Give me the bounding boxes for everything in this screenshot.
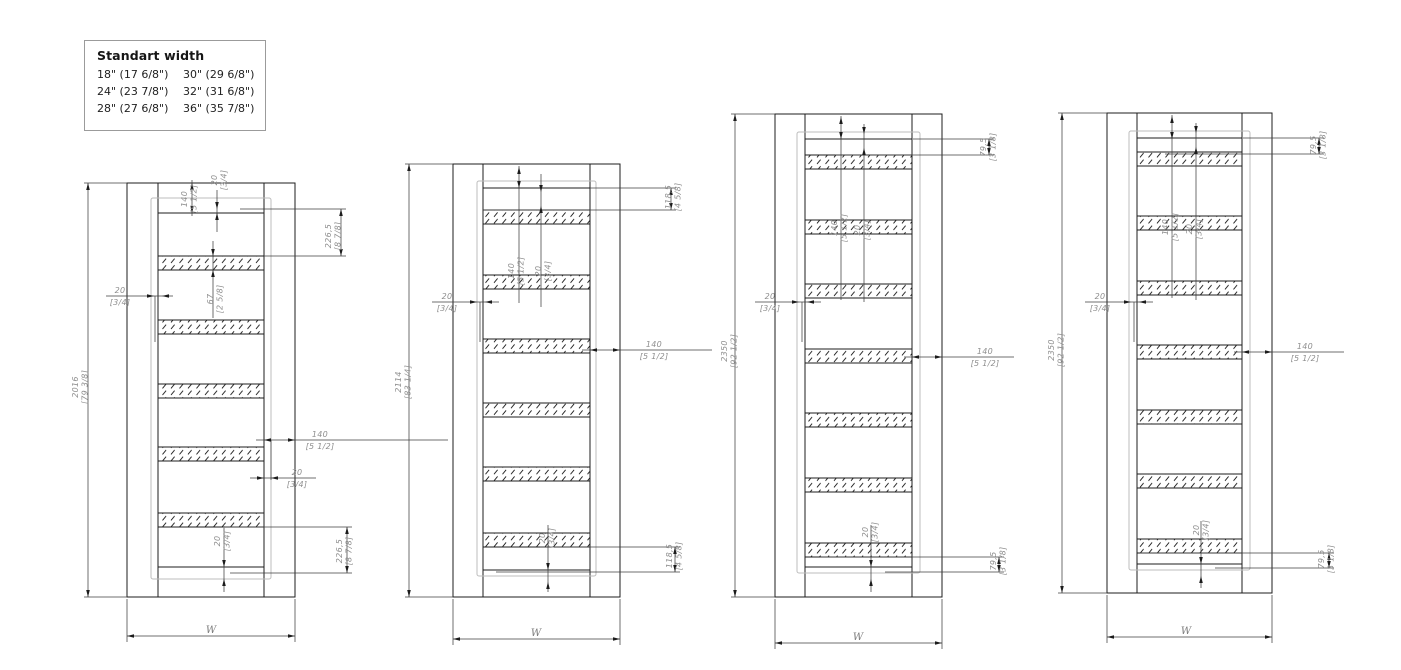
- louver-band: [1137, 281, 1242, 295]
- dim-20-left: 20[3/4]: [437, 292, 458, 313]
- dimension-arrow: [211, 270, 215, 277]
- svg-text:140: 140: [646, 340, 662, 349]
- dimension-arrow: [1107, 635, 1114, 639]
- dimension-arrow: [257, 476, 264, 480]
- dimension-arrow: [345, 566, 349, 573]
- svg-text:[2 5/8]: [2 5/8]: [216, 285, 225, 314]
- dimension-arrow: [407, 164, 411, 171]
- dimension-arrow: [1242, 350, 1249, 354]
- dim-79-top: 79,5[3 1/8]: [1309, 131, 1328, 160]
- svg-text:79,5: 79,5: [979, 137, 988, 156]
- dimension-arrow: [127, 634, 134, 638]
- louver-band: [483, 339, 590, 353]
- louver-band: [1137, 345, 1242, 359]
- louver-band: [805, 413, 912, 427]
- svg-text:[3/4]: [3/4]: [871, 522, 880, 543]
- svg-text:140: 140: [830, 220, 839, 236]
- dimension-arrow: [1170, 116, 1174, 123]
- louver-band: [158, 256, 264, 270]
- dimension-arrow: [613, 637, 620, 641]
- svg-text:20: 20: [1095, 292, 1106, 301]
- svg-text:140: 140: [312, 430, 328, 439]
- dimension-arrow: [1060, 586, 1064, 593]
- dim-20-top: 20[3/4]: [210, 170, 229, 191]
- dim-79-bottom: 79,5[3 1/8]: [1317, 545, 1336, 574]
- dim-height-2350: 2350[92 1/2]: [1047, 333, 1066, 367]
- dim-height-2114: 2114[83 1/4]: [394, 365, 413, 399]
- dimension-arrow: [345, 527, 349, 534]
- svg-text:[8 7/8]: [8 7/8]: [334, 222, 343, 251]
- louver-band: [483, 533, 590, 547]
- svg-text:20: 20: [534, 266, 543, 277]
- dim-height-2350: 2350[92 1/2]: [720, 334, 739, 368]
- dimension-arrow: [1265, 350, 1272, 354]
- svg-text:20: 20: [210, 175, 219, 186]
- svg-text:20: 20: [442, 292, 453, 301]
- dimension-arrow: [590, 348, 597, 352]
- dimension-arrow: [86, 590, 90, 597]
- svg-text:67: 67: [206, 293, 215, 304]
- dimension-arrow: [733, 590, 737, 597]
- svg-text:[3 1/8]: [3 1/8]: [999, 547, 1008, 576]
- svg-text:20: 20: [115, 286, 126, 295]
- svg-text:[5 1/2]: [5 1/2]: [1291, 354, 1320, 363]
- svg-text:[5 1/2]: [5 1/2]: [971, 359, 1000, 368]
- svg-text:140: 140: [1161, 219, 1170, 235]
- dim-20-bottom: 20[3/4]: [861, 522, 880, 543]
- dimension-arrow: [546, 582, 550, 589]
- dimension-arrow: [775, 641, 782, 645]
- dimension-arrow: [211, 249, 215, 256]
- door-elevation-1: 2016[79 3/8]140[5 1/2]20[3/4]226,5[8 7/8…: [71, 170, 448, 642]
- louver-band: [805, 284, 912, 298]
- svg-text:20: 20: [292, 468, 303, 477]
- dimension-arrow: [935, 641, 942, 645]
- svg-text:[3 1/8]: [3 1/8]: [989, 133, 998, 162]
- louver-band: [1137, 474, 1242, 488]
- dimension-arrow: [288, 634, 295, 638]
- louver-band: [805, 155, 912, 169]
- dimension-arrow: [1194, 147, 1198, 154]
- dim-79-top: 79,5[3 1/8]: [979, 133, 998, 162]
- svg-text:140: 140: [180, 191, 189, 207]
- dimension-arrow: [1199, 576, 1203, 583]
- dimension-arrow: [215, 213, 219, 220]
- dim-118-bottom: 118,5[4 5/8]: [665, 542, 684, 571]
- svg-text:2350: 2350: [1047, 339, 1056, 361]
- svg-text:[3/4]: [3/4]: [863, 220, 872, 241]
- dim-140-right: 140[5 1/2]: [640, 340, 669, 361]
- dimension-arrow: [470, 300, 477, 304]
- svg-text:[3 1/8]: [3 1/8]: [1319, 131, 1328, 160]
- louver-band: [805, 349, 912, 363]
- dimension-arrow: [264, 438, 271, 442]
- svg-text:[4 5/8]: [4 5/8]: [674, 183, 683, 212]
- technical-drawing-canvas: 2016[79 3/8]140[5 1/2]20[3/4]226,5[8 7/8…: [0, 0, 1401, 670]
- svg-text:20: 20: [538, 533, 547, 544]
- dim-140-right: 140[5 1/2]: [971, 347, 1000, 368]
- louver-band: [483, 210, 590, 224]
- svg-text:[3/4]: [3/4]: [223, 531, 232, 552]
- dimension-arrow: [862, 127, 866, 134]
- dimension-arrow: [215, 202, 219, 209]
- louver-band: [158, 320, 264, 334]
- svg-text:20: 20: [213, 536, 222, 547]
- svg-text:[5 1/2]: [5 1/2]: [517, 257, 526, 286]
- dimension-arrow: [1139, 300, 1146, 304]
- svg-text:118,5: 118,5: [664, 185, 673, 209]
- dim-width-w: W: [853, 632, 864, 643]
- dim-226-top: 226,5[8 7/8]: [324, 222, 343, 251]
- dimension-arrow: [546, 563, 550, 570]
- svg-text:2114: 2114: [394, 371, 403, 393]
- svg-text:[92 1/2]: [92 1/2]: [1057, 333, 1066, 367]
- dim-width-w: W: [206, 625, 217, 636]
- dimension-arrow: [869, 579, 873, 586]
- louver-band: [805, 478, 912, 492]
- dimension-arrow: [222, 579, 226, 586]
- dimension-arrow: [407, 590, 411, 597]
- dimension-arrow: [517, 167, 521, 174]
- dim-226-bottom: 226,5[8 7/8]: [335, 537, 354, 566]
- svg-text:2350: 2350: [720, 340, 729, 362]
- dimension-arrow: [222, 560, 226, 567]
- dim-20-bottom: 20[3/4]: [1192, 520, 1211, 541]
- louver-band: [805, 543, 912, 557]
- svg-text:[3/4]: [3/4]: [1202, 520, 1211, 541]
- dim-20-right: 20[3/4]: [287, 468, 308, 489]
- dimension-arrow: [339, 209, 343, 216]
- dim-140-top: 140[5 1/2]: [180, 185, 199, 214]
- dim-140-right: 140[5 1/2]: [306, 430, 335, 451]
- svg-text:[3/4]: [3/4]: [760, 304, 781, 313]
- svg-text:2016: 2016: [71, 376, 80, 398]
- door-elevation-4: 2350[92 1/2]140[5 1/2]20[3/4]79,5[3 1/8]…: [1047, 113, 1344, 643]
- svg-text:[5 1/2]: [5 1/2]: [640, 352, 669, 361]
- svg-text:[79 3/8]: [79 3/8]: [81, 370, 90, 404]
- svg-text:20: 20: [853, 225, 862, 236]
- dim-118-top: 118,5[4 5/8]: [664, 183, 683, 212]
- dimension-arrow: [1265, 635, 1272, 639]
- louver-band: [483, 467, 590, 481]
- svg-text:20: 20: [861, 527, 870, 538]
- svg-text:[5 1/2]: [5 1/2]: [190, 185, 199, 214]
- dimension-arrow: [517, 181, 521, 188]
- svg-text:[5 1/2]: [5 1/2]: [840, 214, 849, 243]
- page: Standart width 18" (17 6/8") 30" (29 6/8…: [0, 0, 1401, 670]
- svg-text:[4 5/8]: [4 5/8]: [675, 542, 684, 571]
- svg-text:[92 1/2]: [92 1/2]: [730, 334, 739, 368]
- svg-text:[3 1/8]: [3 1/8]: [1327, 545, 1336, 574]
- svg-text:20: 20: [765, 292, 776, 301]
- svg-text:[3/4]: [3/4]: [437, 304, 458, 313]
- door-elevation-2: 2114[83 1/4]140[5 1/2]20[3/4]118,5[4 5/8…: [394, 164, 712, 645]
- svg-text:[5 1/2]: [5 1/2]: [1171, 213, 1180, 242]
- dim-140-right: 140[5 1/2]: [1291, 342, 1320, 363]
- svg-text:[3/4]: [3/4]: [548, 528, 557, 549]
- svg-text:[3/4]: [3/4]: [220, 170, 229, 191]
- svg-text:140: 140: [977, 347, 993, 356]
- dim-height-2016: 2016[79 3/8]: [71, 370, 90, 404]
- svg-text:[83 1/4]: [83 1/4]: [404, 365, 413, 399]
- dim-20-bottom: 20[3/4]: [213, 531, 232, 552]
- louver-band: [158, 384, 264, 398]
- svg-text:140: 140: [507, 263, 516, 279]
- dimension-arrow: [453, 637, 460, 641]
- dim-140-mid: 140[5 1/2]: [830, 214, 849, 243]
- door-drawings-svg: 2016[79 3/8]140[5 1/2]20[3/4]226,5[8 7/8…: [0, 0, 1401, 670]
- louver-band: [158, 513, 264, 527]
- dim-width-w: W: [1181, 626, 1192, 637]
- door-frame: [453, 164, 620, 597]
- dimension-arrow: [869, 560, 873, 567]
- dimension-arrow: [1199, 557, 1203, 564]
- svg-text:[3/4]: [3/4]: [287, 480, 308, 489]
- dim-79-bottom: 79,5[3 1/8]: [989, 547, 1008, 576]
- svg-text:79,5: 79,5: [989, 551, 998, 570]
- dimension-arrow: [839, 117, 843, 124]
- dim-20-left: 20[3/4]: [760, 292, 781, 313]
- louver-band: [483, 403, 590, 417]
- dim-width-w: W: [531, 628, 542, 639]
- svg-text:118,5: 118,5: [665, 544, 674, 568]
- dim-67-band: 67[2 5/8]: [206, 285, 225, 314]
- dimension-arrow: [288, 438, 295, 442]
- louver-band: [1137, 539, 1242, 553]
- dimension-arrow: [862, 148, 866, 155]
- svg-text:140: 140: [1297, 342, 1313, 351]
- dimension-arrow: [912, 355, 919, 359]
- svg-text:20: 20: [1192, 525, 1201, 536]
- dimension-arrow: [1060, 113, 1064, 120]
- svg-text:[8 7/8]: [8 7/8]: [345, 537, 354, 566]
- dimension-arrow: [807, 300, 814, 304]
- svg-text:79,5: 79,5: [1309, 135, 1318, 154]
- svg-text:226,5: 226,5: [324, 224, 333, 248]
- dimension-arrow: [839, 132, 843, 139]
- louver-band: [1137, 410, 1242, 424]
- svg-text:[5 1/2]: [5 1/2]: [306, 442, 335, 451]
- svg-text:[3/4]: [3/4]: [544, 261, 553, 282]
- dimension-arrow: [733, 114, 737, 121]
- dimension-arrow: [935, 355, 942, 359]
- door-elevation-3: 2350[92 1/2]140[5 1/2]20[3/4]79,5[3 1/8]…: [720, 114, 1014, 649]
- svg-text:20: 20: [1185, 224, 1194, 235]
- dimension-arrow: [162, 294, 169, 298]
- dimension-arrow: [613, 348, 620, 352]
- door-leaf-seal: [477, 181, 596, 576]
- svg-text:[3/4]: [3/4]: [1195, 219, 1204, 240]
- louver-band: [158, 447, 264, 461]
- dimension-arrow: [86, 183, 90, 190]
- dimension-arrow: [1124, 300, 1131, 304]
- dimension-arrow: [792, 300, 799, 304]
- dimension-arrow: [271, 476, 278, 480]
- svg-text:79,5: 79,5: [1317, 549, 1326, 568]
- svg-text:[3/4]: [3/4]: [110, 298, 131, 307]
- dimension-arrow: [485, 300, 492, 304]
- svg-text:226,5: 226,5: [335, 539, 344, 563]
- dimension-arrow: [1194, 126, 1198, 133]
- svg-text:[3/4]: [3/4]: [1090, 304, 1111, 313]
